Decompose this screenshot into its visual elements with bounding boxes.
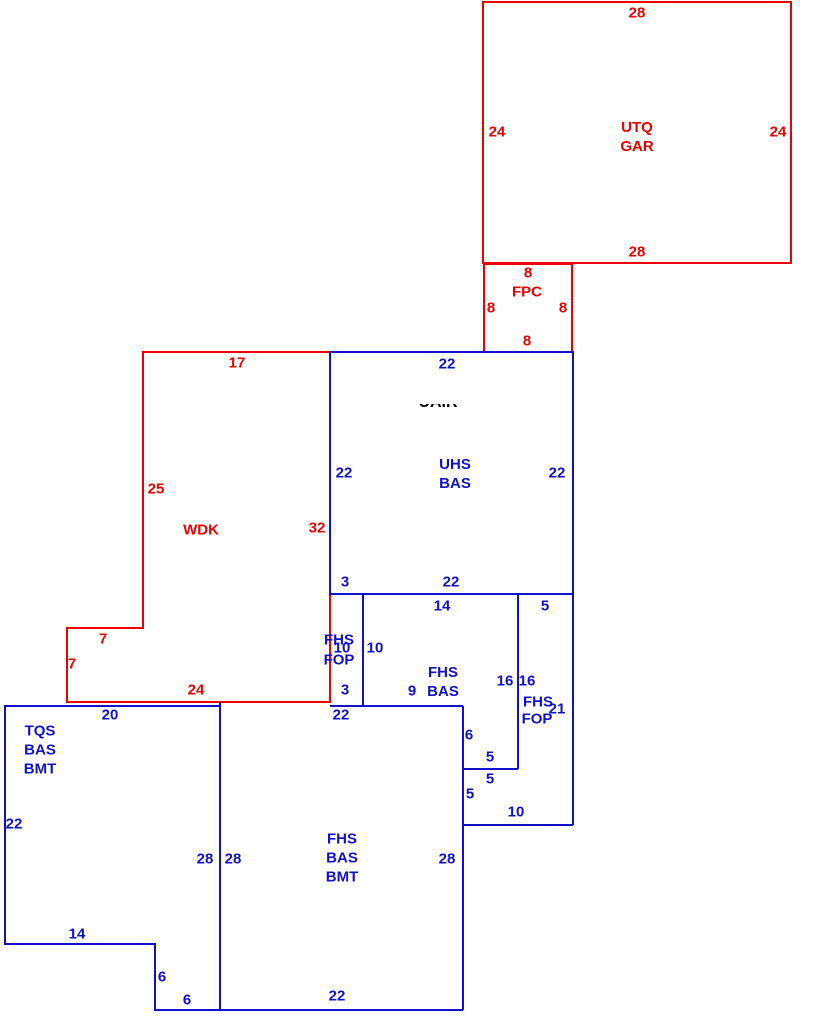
- wdk-dim-left: 25: [148, 480, 165, 499]
- fop-dim-bottom: 10: [508, 803, 525, 822]
- fhsbas-dim-right: 16: [497, 672, 514, 691]
- fhsbmt-dim-top: 22: [333, 706, 350, 725]
- fhsbmt-dim-bottom: 22: [329, 987, 346, 1006]
- fpc-dim-right: 8: [559, 299, 567, 318]
- tqs-label: TQS BAS BMT: [24, 722, 57, 779]
- tqs-dim-top: 20: [102, 706, 119, 725]
- fpc-dim-left: 8: [487, 299, 495, 318]
- uhs-dim-top: 22: [439, 355, 456, 374]
- gar-dim-right: 24: [770, 123, 787, 142]
- tqs-dim-bottom: 14: [69, 925, 86, 944]
- fpc-dim-top: 8: [524, 264, 532, 283]
- utq-gar-label: UTQ GAR: [620, 118, 653, 156]
- fhs-bas-label: FHS BAS: [427, 663, 459, 701]
- wdk-dim-bottom: 24: [188, 681, 205, 700]
- tqs-dim-left: 22: [6, 815, 23, 834]
- uhs-dim-right: 22: [549, 464, 566, 483]
- tqs-dim-right: 28: [197, 850, 214, 869]
- clipped-black-text: UAIR: [407, 404, 469, 415]
- fop-right-dim-top: 5: [541, 597, 549, 616]
- sketch-lines: [0, 0, 813, 1020]
- tqs-notch-dim-h: 6: [183, 991, 191, 1010]
- step-dim-6: 6: [465, 726, 473, 745]
- sketch-canvas: 2824UTQ GAR24288FPC8881725WDK32772422UAI…: [0, 0, 813, 1020]
- gar-dim-left: 24: [489, 123, 506, 142]
- uhs-dim-bottom: 22: [443, 573, 460, 592]
- uhs-bas-label: UHS BAS: [439, 455, 471, 493]
- fop-strip-fop: FOP: [324, 651, 355, 670]
- fpc-label: FPC: [512, 283, 542, 302]
- step-dim-5a: 5: [486, 748, 494, 767]
- fpc-dim-bottom: 8: [523, 332, 531, 351]
- gar-dim-bottom: 28: [629, 243, 646, 262]
- fop-strip-dim-bottom: 3: [341, 681, 349, 700]
- wdk-dim-top: 17: [229, 354, 246, 373]
- fhsbas-dim-bottom: 9: [408, 682, 416, 701]
- uhs-dim-left: 22: [336, 464, 353, 483]
- fhsbmt-dim-right: 28: [439, 850, 456, 869]
- fhs-bmt-label: FHS BAS BMT: [326, 830, 359, 887]
- wdk-label: WDK: [183, 521, 219, 540]
- wdk-notch-dim-v: 7: [68, 655, 76, 674]
- fop-right-dim-left: 16: [519, 672, 536, 691]
- wdk-notch-dim-h: 7: [99, 630, 107, 649]
- step-dim-5c: 5: [466, 785, 474, 804]
- fop-strip-dim-10b: 10: [367, 639, 384, 658]
- uhs-dim-bottom-left: 3: [341, 573, 349, 592]
- tqs-notch-dim-v: 6: [158, 968, 166, 987]
- wdk-dim-right: 32: [309, 519, 326, 538]
- fop-right-fop: FOP: [522, 710, 553, 729]
- fhsbas-dim-top: 14: [434, 597, 451, 616]
- step-dim-5b: 5: [486, 770, 494, 789]
- gar-dim-top: 28: [629, 4, 646, 23]
- fhsbmt-dim-left: 28: [225, 850, 242, 869]
